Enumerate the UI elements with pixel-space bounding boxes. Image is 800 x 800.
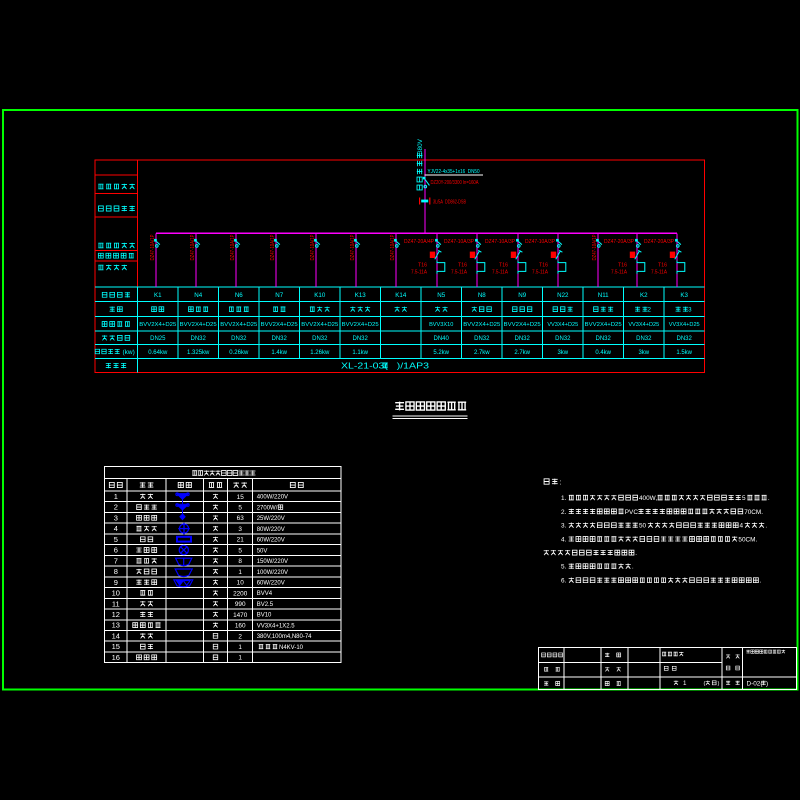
svg-text:K10: K10 <box>314 292 326 299</box>
svg-text:BVV2X4+D25: BVV2X4+D25 <box>180 322 217 328</box>
svg-text:DZ47-10A/3P: DZ47-10A/3P <box>525 239 556 245</box>
svg-text:YJV22-4x35+1x16 DN50: YJV22-4x35+1x16 DN50 <box>428 169 480 175</box>
svg-text:DZ47-10A/1P: DZ47-10A/1P <box>150 234 156 260</box>
svg-text:6.: 6. <box>561 578 567 585</box>
svg-text:DN32: DN32 <box>515 336 531 342</box>
svg-text:DZ47-10A/1P: DZ47-10A/1P <box>230 234 236 260</box>
svg-text:4: 4 <box>114 524 118 533</box>
svg-text:70CM.: 70CM. <box>744 509 763 516</box>
svg-text:8: 8 <box>114 567 118 576</box>
svg-text:K3: K3 <box>680 292 688 299</box>
svg-text:T16: T16 <box>499 263 508 269</box>
svg-text:50: 50 <box>639 523 647 530</box>
svg-text:3: 3 <box>114 513 118 522</box>
svg-text:T16: T16 <box>658 263 667 269</box>
svg-text:5.: 5. <box>561 564 567 571</box>
svg-text:T16: T16 <box>539 263 548 269</box>
svg-text:T16: T16 <box>458 263 467 269</box>
svg-text:10: 10 <box>237 580 245 587</box>
svg-text:3: 3 <box>688 307 692 314</box>
svg-text:DN32: DN32 <box>636 336 652 342</box>
svg-text:5: 5 <box>742 495 746 502</box>
svg-text:BVV2X4+D25: BVV2X4+D25 <box>585 322 622 328</box>
svg-text:): ) <box>718 681 720 687</box>
svg-text:N6: N6 <box>235 292 243 299</box>
svg-text:T16: T16 <box>618 263 627 269</box>
svg-text:DN32: DN32 <box>353 336 369 342</box>
svg-text:K2: K2 <box>640 292 648 299</box>
svg-text:DZ47-10A/1P: DZ47-10A/1P <box>270 234 276 260</box>
svg-text:990: 990 <box>235 601 246 608</box>
svg-text:1470: 1470 <box>233 612 248 619</box>
svg-text:7.5-11A: 7.5-11A <box>451 269 467 275</box>
svg-text:BVV2X4+D25: BVV2X4+D25 <box>301 322 338 328</box>
svg-text:15: 15 <box>112 642 120 651</box>
svg-text:80W/220V: 80W/220V <box>257 527 285 533</box>
svg-text:DZ47-20A/3P: DZ47-20A/3P <box>644 239 675 245</box>
svg-text:7.5-11A: 7.5-11A <box>611 269 627 275</box>
svg-text:1.4kw: 1.4kw <box>271 350 287 356</box>
svg-text:380V,100m4,N80-74: 380V,100m4,N80-74 <box>257 634 312 640</box>
svg-text:BVV2X4+D25: BVV2X4+D25 <box>139 322 176 328</box>
svg-text:DZ47-10A/1P: DZ47-10A/1P <box>350 234 356 260</box>
svg-text:21: 21 <box>237 537 245 544</box>
svg-text:DN32: DN32 <box>272 336 288 342</box>
svg-text:12: 12 <box>112 610 120 619</box>
svg-text:(kw): (kw) <box>123 349 135 356</box>
svg-text:1: 1 <box>238 655 242 662</box>
svg-text:VV3X4+D25: VV3X4+D25 <box>547 322 578 328</box>
svg-text:3: 3 <box>238 526 242 533</box>
svg-text:BV10: BV10 <box>257 613 272 619</box>
svg-text:100W/220V: 100W/220V <box>257 570 288 576</box>
svg-text:15: 15 <box>237 494 245 501</box>
svg-text:4: 4 <box>740 523 744 530</box>
svg-text:.: . <box>635 550 637 557</box>
svg-text:16: 16 <box>112 653 120 662</box>
svg-text:10: 10 <box>112 589 120 598</box>
svg-text:2.: 2. <box>561 509 567 516</box>
svg-text:DZ20Y-200/3300 In=160A: DZ20Y-200/3300 In=160A <box>431 180 479 186</box>
svg-text:N22: N22 <box>557 292 569 299</box>
svg-text:DZ47-10A/1P: DZ47-10A/1P <box>190 234 196 260</box>
svg-text:1: 1 <box>238 644 242 651</box>
svg-text:380V: 380V <box>417 138 424 154</box>
svg-text:7.5-11A: 7.5-11A <box>532 269 548 275</box>
svg-text:BV2.5: BV2.5 <box>257 602 274 608</box>
svg-text:400W/220V: 400W/220V <box>257 495 288 501</box>
svg-text:50CM.: 50CM. <box>738 537 757 544</box>
svg-text:N8: N8 <box>478 292 486 299</box>
svg-text:N5: N5 <box>437 292 445 299</box>
svg-text:N9: N9 <box>518 292 526 299</box>
svg-text:7: 7 <box>114 556 118 565</box>
svg-text:3.: 3. <box>561 523 567 530</box>
svg-text:DZ47-10A/1P: DZ47-10A/1P <box>310 234 316 260</box>
svg-text:N7: N7 <box>275 292 283 299</box>
svg-text:1: 1 <box>683 680 687 687</box>
svg-text:DZ47-10A/3P: DZ47-10A/3P <box>444 239 475 245</box>
svg-text:.: . <box>765 523 767 530</box>
svg-text:2: 2 <box>647 307 651 314</box>
svg-text:DN32: DN32 <box>677 336 693 342</box>
svg-text:K14: K14 <box>395 292 407 299</box>
svg-text::: : <box>560 479 562 486</box>
svg-text:2200: 2200 <box>233 590 248 597</box>
svg-text:5: 5 <box>114 535 118 544</box>
svg-text:DZ47-10A/1P: DZ47-10A/1P <box>390 234 396 260</box>
svg-text:3kw: 3kw <box>638 350 649 356</box>
svg-text:T16: T16 <box>418 263 427 269</box>
svg-text:2700W/: 2700W/ <box>257 505 278 511</box>
svg-text:BVV2X4+D25: BVV2X4+D25 <box>504 322 541 328</box>
svg-text:DN32: DN32 <box>555 336 571 342</box>
svg-text:60W/220V: 60W/220V <box>257 581 285 587</box>
svg-text:BVV2X4+D25: BVV2X4+D25 <box>463 322 500 328</box>
svg-text:(: ( <box>704 681 706 687</box>
svg-text:1.26kw: 1.26kw <box>310 350 330 356</box>
svg-text:.: . <box>632 564 634 571</box>
svg-text:DN25: DN25 <box>150 336 166 342</box>
svg-text:DN32: DN32 <box>191 336 207 342</box>
svg-text:DZ47-20A/4P: DZ47-20A/4P <box>404 239 435 245</box>
svg-text:K1: K1 <box>154 292 162 299</box>
svg-text:60W/220V: 60W/220V <box>257 538 285 544</box>
svg-text:DN32: DN32 <box>231 336 247 342</box>
svg-text:25W/220V: 25W/220V <box>257 516 285 522</box>
svg-text:0.4kw: 0.4kw <box>595 350 611 356</box>
svg-text:0.64kw: 0.64kw <box>148 350 168 356</box>
svg-text:VV3X4+D25: VV3X4+D25 <box>628 322 659 328</box>
svg-text:2.7kw: 2.7kw <box>474 350 490 356</box>
svg-text:2.7kw: 2.7kw <box>514 350 530 356</box>
svg-text:160: 160 <box>235 623 246 630</box>
svg-text:1: 1 <box>238 569 242 576</box>
svg-text:.: . <box>760 578 762 585</box>
svg-text:VV3X4+D25: VV3X4+D25 <box>669 322 700 328</box>
svg-text:BVV2X4+D25: BVV2X4+D25 <box>342 322 379 328</box>
svg-text:DZ47-20A/3P: DZ47-20A/3P <box>604 239 635 245</box>
svg-text:5: 5 <box>238 547 242 554</box>
svg-text:DN40: DN40 <box>434 336 450 342</box>
svg-text:7.5-11A: 7.5-11A <box>492 269 508 275</box>
svg-text:7.5-11A: 7.5-11A <box>411 269 427 275</box>
svg-text:0.26kw: 0.26kw <box>229 350 249 356</box>
svg-text:1.: 1. <box>561 495 567 502</box>
svg-text:N4: N4 <box>194 292 202 299</box>
svg-text:BVV3X10: BVV3X10 <box>429 322 453 328</box>
svg-text:50V: 50V <box>257 548 268 554</box>
svg-text:2: 2 <box>114 503 118 512</box>
svg-text:5.2kw: 5.2kw <box>433 350 449 356</box>
svg-text:13: 13 <box>112 621 120 630</box>
svg-text:BVV2X4+D25: BVV2X4+D25 <box>220 322 257 328</box>
svg-text:11: 11 <box>112 599 120 608</box>
svg-text:2: 2 <box>238 633 242 640</box>
svg-text:DN32: DN32 <box>474 336 490 342</box>
svg-text:150W/220V: 150W/220V <box>257 559 288 565</box>
svg-text:N4KV-10: N4KV-10 <box>279 645 304 651</box>
svg-text:4.: 4. <box>561 537 567 544</box>
svg-text:3L/5A DD862-DSB: 3L/5A DD862-DSB <box>433 200 466 206</box>
svg-text:1.325kw: 1.325kw <box>187 350 210 356</box>
svg-text:DN32: DN32 <box>312 336 328 342</box>
svg-text:14: 14 <box>112 632 120 641</box>
svg-text:BVV2X4+D25: BVV2X4+D25 <box>261 322 298 328</box>
svg-text:PVC: PVC <box>625 509 639 516</box>
svg-text:5: 5 <box>238 505 242 512</box>
svg-text:9: 9 <box>114 578 118 587</box>
svg-text:BVV4: BVV4 <box>257 591 273 597</box>
svg-text:VV3X4+1X2.5: VV3X4+1X2.5 <box>257 623 296 629</box>
svg-text:400W,: 400W, <box>639 495 657 502</box>
svg-text:6: 6 <box>114 546 118 555</box>
svg-text:.: . <box>768 495 770 502</box>
svg-text:1.1kw: 1.1kw <box>352 350 368 356</box>
svg-text:K13: K13 <box>355 292 367 299</box>
svg-text:N11: N11 <box>598 292 609 299</box>
svg-text:3kw: 3kw <box>557 350 568 356</box>
svg-text:DN32: DN32 <box>596 336 612 342</box>
svg-text:1.5kw: 1.5kw <box>676 350 692 356</box>
svg-text:DZ47-10A/1P: DZ47-10A/1P <box>592 234 598 260</box>
svg-text:DZ47-10A/3P: DZ47-10A/3P <box>485 239 516 245</box>
svg-text:1: 1 <box>114 492 118 501</box>
svg-text:63: 63 <box>237 515 245 522</box>
svg-text:8: 8 <box>238 558 242 565</box>
svg-text:7.5-11A: 7.5-11A <box>651 269 667 275</box>
